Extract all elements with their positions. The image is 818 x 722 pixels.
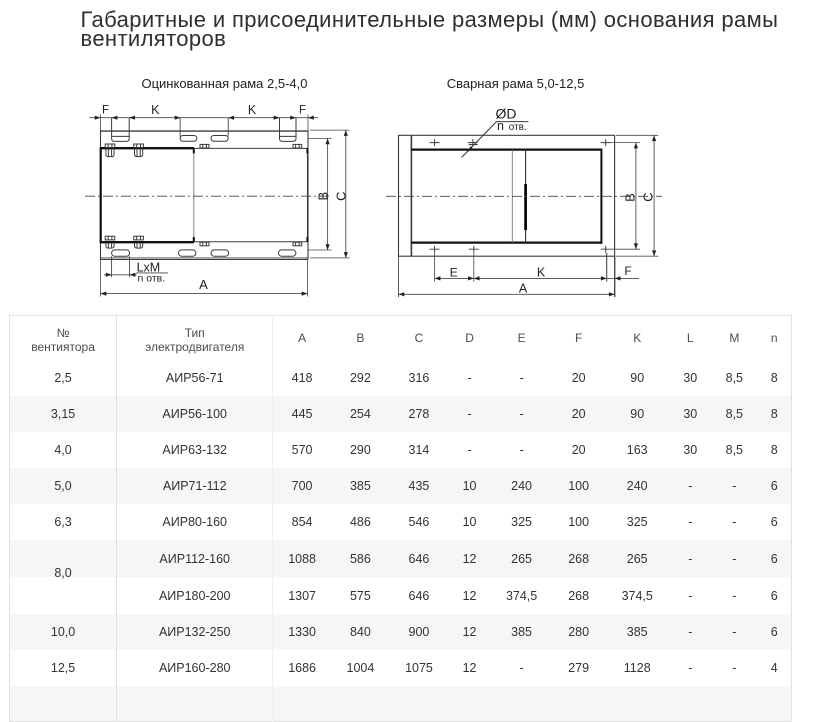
svg-text:B: B	[315, 192, 330, 201]
svg-text:B: B	[623, 193, 638, 202]
svg-text:A: A	[199, 277, 208, 292]
svg-text:n отв.: n отв.	[138, 273, 166, 285]
svg-text:C: C	[333, 192, 348, 201]
svg-text:K: K	[537, 266, 546, 280]
svg-text:C: C	[640, 192, 655, 201]
svg-text:E: E	[450, 266, 458, 280]
svg-text:A: A	[519, 282, 528, 296]
svg-text:F: F	[299, 105, 306, 117]
svg-text:Сварная рама 5,0-12,5: Сварная рама 5,0-12,5	[447, 76, 585, 91]
svg-text:Оцинкованная рама 2,5-4,0: Оцинкованная рама 2,5-4,0	[141, 76, 307, 91]
svg-text:F: F	[102, 105, 109, 117]
svg-text:n отв.: n отв.	[497, 119, 527, 133]
svg-text:K: K	[248, 103, 257, 117]
svg-text:K: K	[151, 103, 160, 117]
svg-text:F: F	[624, 264, 631, 278]
